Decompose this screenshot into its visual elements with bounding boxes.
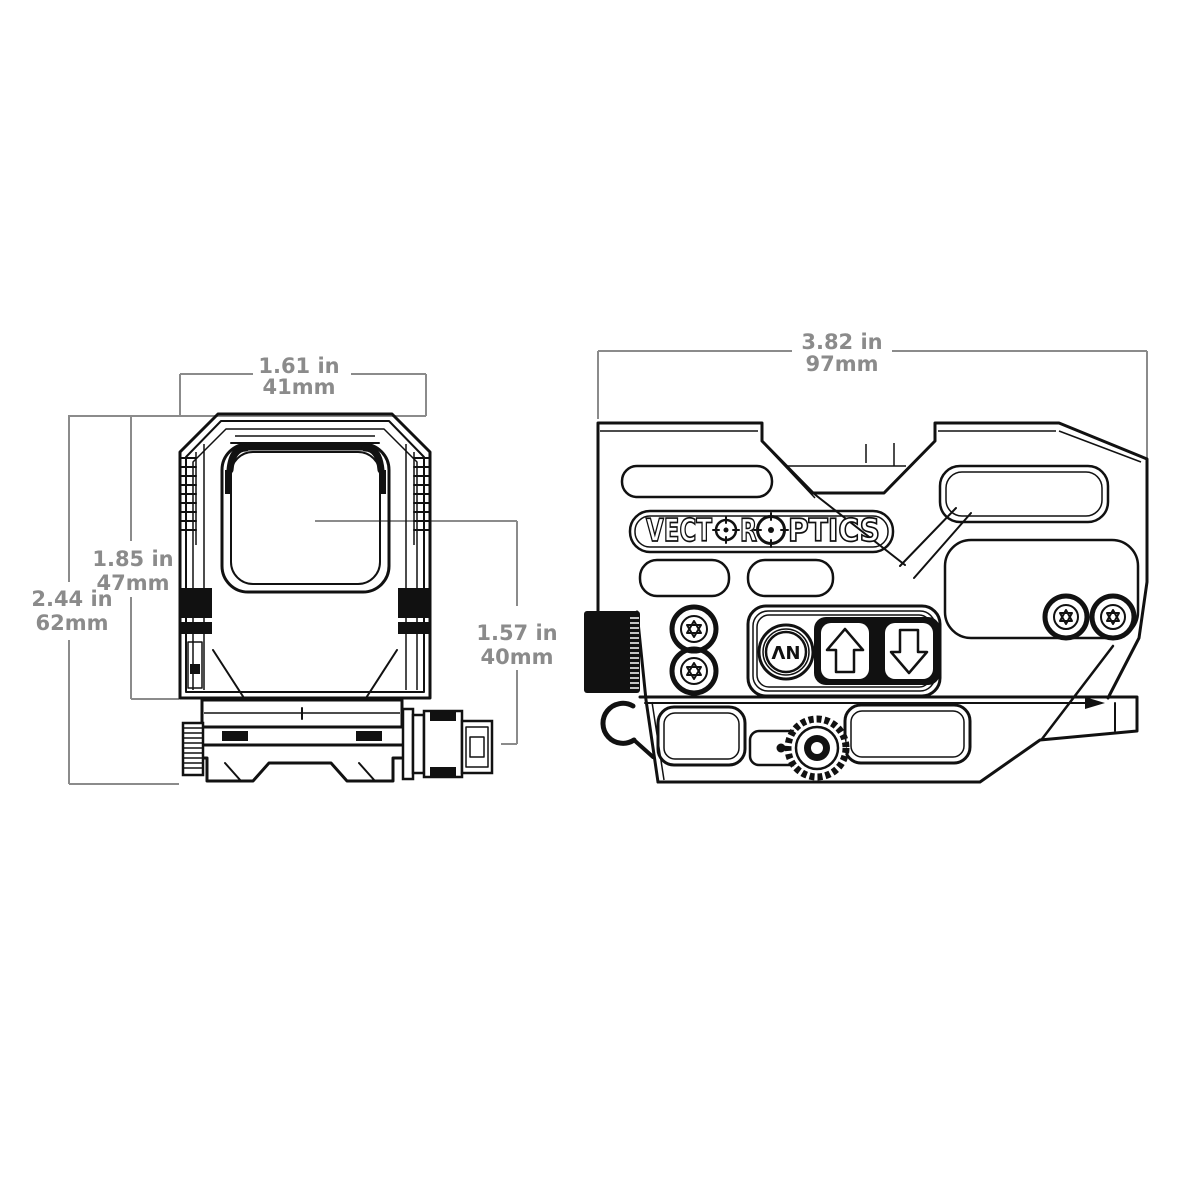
body-taper-lines [213, 650, 397, 698]
logo-reticle-o-large [754, 513, 788, 547]
nv-button: NV [759, 625, 813, 679]
nv-button-label: NV [771, 641, 800, 662]
side-body [598, 423, 1147, 782]
torx-screw-rear-left [1045, 596, 1087, 638]
dim-height-overall: 2.44 in 62mm [31, 416, 179, 784]
logo-seg-vect: VECT [646, 513, 712, 549]
divider-arrow [1085, 697, 1105, 709]
logo-seg-ptics: PTICS [788, 513, 880, 549]
clamp-bolt [403, 709, 492, 779]
technical-drawing: 1.61 in 41mm 1.85 in 47mm 2.44 in 62mm 1… [0, 0, 1200, 1200]
bottom-pocket-front [658, 707, 745, 765]
dim-height-body-in: 1.85 in [92, 547, 173, 571]
button-panel: NV [748, 606, 940, 696]
front-view: 1.61 in 41mm 1.85 in 47mm 2.44 in 62mm 1… [31, 354, 557, 784]
dim-height-body: 1.85 in 47mm [92, 416, 179, 699]
torx-screw-front-bottom [672, 649, 716, 693]
battery-dial [788, 719, 846, 777]
bottom-pocket-rear [845, 705, 970, 763]
mount-deck [202, 700, 402, 727]
logo-reticle-o-small [713, 517, 739, 543]
dim-axis-height-in: 1.57 in [476, 621, 557, 645]
lanyard-loop [603, 703, 653, 757]
picatinny-rail [189, 727, 411, 781]
dim-length-overall-in: 3.82 in [801, 330, 882, 354]
dim-height-overall-in: 2.44 in [31, 587, 112, 611]
side-knob [584, 611, 640, 693]
dim-width-top-mm: 41mm [263, 375, 336, 399]
side-latch-detail [188, 642, 202, 688]
side-view: 3.82 in 97mm [584, 330, 1147, 782]
dim-length-overall-mm: 97mm [806, 352, 879, 376]
torx-screw-rear-right [1092, 596, 1134, 638]
clamp-nut [183, 723, 203, 775]
torx-screw-front-top [672, 607, 716, 651]
side-block-right [398, 588, 429, 634]
dim-axis-height-mm: 40mm [481, 645, 554, 669]
drawing-canvas: 1.61 in 41mm 1.85 in 47mm 2.44 in 62mm 1… [0, 0, 1200, 1200]
side-block-left [181, 588, 212, 634]
objective-window [222, 444, 389, 592]
dim-height-overall-mm: 62mm [36, 611, 109, 635]
brand-logo: VECT R PTICS [630, 511, 893, 552]
dim-width-top: 1.61 in 41mm [180, 354, 426, 416]
